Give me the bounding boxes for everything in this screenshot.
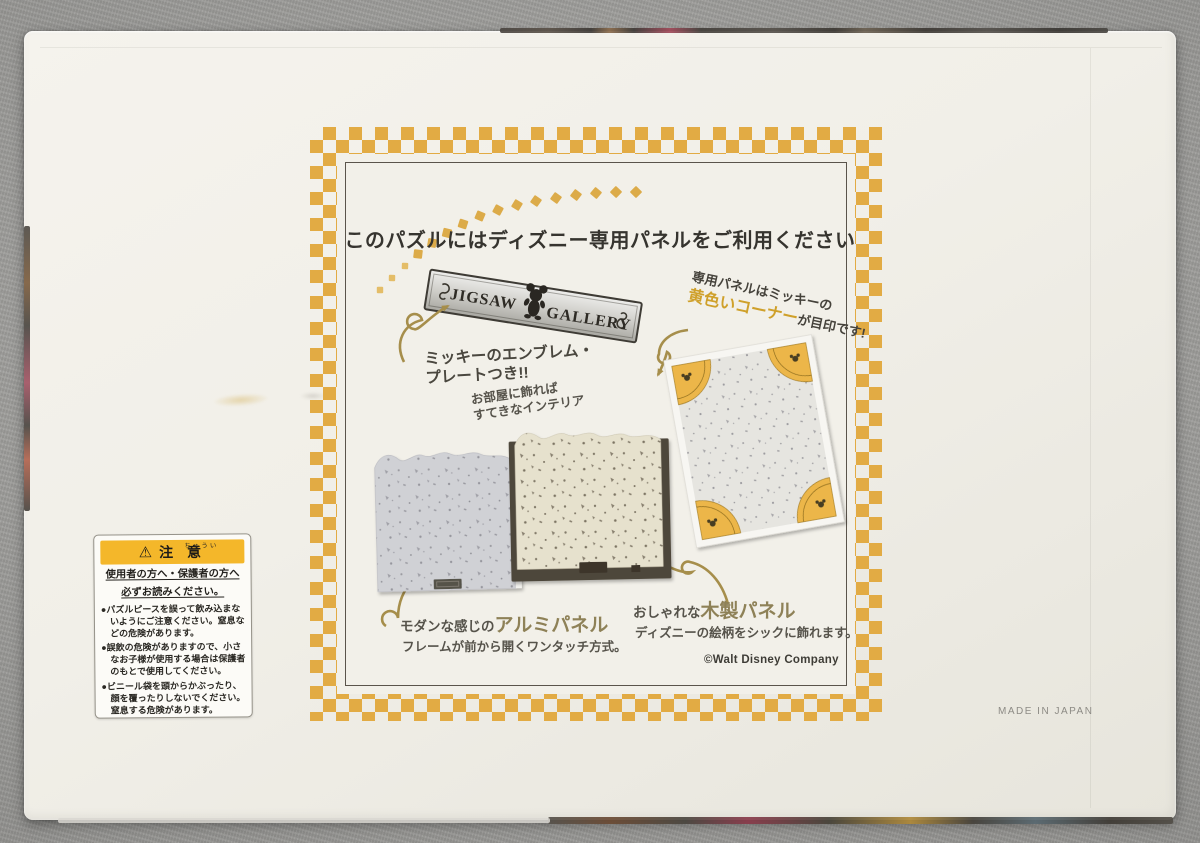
aluminum-panel-name: アルミパネル — [495, 615, 609, 636]
mickey-emblem-plate-left — [434, 579, 462, 590]
wooden-panel-caption: おしゃれな木製パネル — [633, 596, 796, 623]
box-lid-seam-top — [40, 47, 1162, 48]
caution-item: ●誤飲の危険がありますので、小さなお子様が使用する場合は保護者のもとで使用してく… — [101, 642, 245, 679]
aluminum-panel-caption: モダンな感じのアルミパネル — [400, 610, 608, 637]
caution-item: ●ビニール袋を頭からかぶったり、顔を覆ったりしないでください。窒息する危険があり… — [101, 680, 245, 717]
caution-sticker: ⚠ 注 意 ちゅうい 使用者の方へ・保護者の方へ 必ずお読みください。 ●パズル… — [93, 533, 253, 718]
caution-lead-line2: 必ずお読みください。 — [101, 585, 245, 600]
box-edge-print-strip-bottom — [548, 817, 1173, 824]
aluminum-panel-description: フレームが前から開くワンタッチ方式。 — [402, 636, 627, 655]
caution-item-list: ●パズルピースを誤って飲み込まないようにご注意ください。窒息などの危険があります… — [101, 603, 246, 717]
walt-disney-copyright: ©Walt Disney Company — [704, 654, 839, 666]
wooden-panel-photo — [498, 420, 681, 592]
mickey-emblem-plate-middle — [579, 562, 607, 574]
box-bottom-rim — [58, 818, 550, 823]
aluminum-caption-prefix: モダンな感じの — [400, 619, 495, 634]
wooden-panel-description: ディズニーの絵柄をシックに飾れます。 — [635, 622, 858, 641]
aluminum-panel-pattern — [374, 451, 516, 592]
headline-use-disney-panel: このパズルにはディズニー専用パネルをご利用ください — [340, 224, 860, 253]
caution-header: ⚠ 注 意 ちゅうい — [100, 539, 244, 564]
warning-triangle-icon: ⚠ — [139, 545, 153, 560]
box-lid-seam-right — [1090, 48, 1091, 808]
wooden-caption-prefix: おしゃれな — [633, 605, 701, 620]
caution-item: ●パズルピースを誤って飲み込まないようにご注意ください。窒息などの危険があります… — [101, 603, 245, 640]
box-edge-print-strip-left — [24, 226, 30, 511]
photo-of-puzzle-box-back: { "box_back": { "title": "このパズルにはディズニー専用… — [0, 0, 1200, 843]
box-edge-print-strip-top — [500, 28, 1108, 33]
caution-furigana: ちゅうい — [184, 540, 218, 550]
made-in-japan-text: MADE IN JAPAN — [998, 706, 1093, 717]
wooden-panel-name: 木製パネル — [701, 601, 796, 622]
caution-lead-line1: 使用者の方へ・保護者の方へ — [100, 567, 244, 582]
wooden-panel-pattern — [514, 430, 663, 569]
